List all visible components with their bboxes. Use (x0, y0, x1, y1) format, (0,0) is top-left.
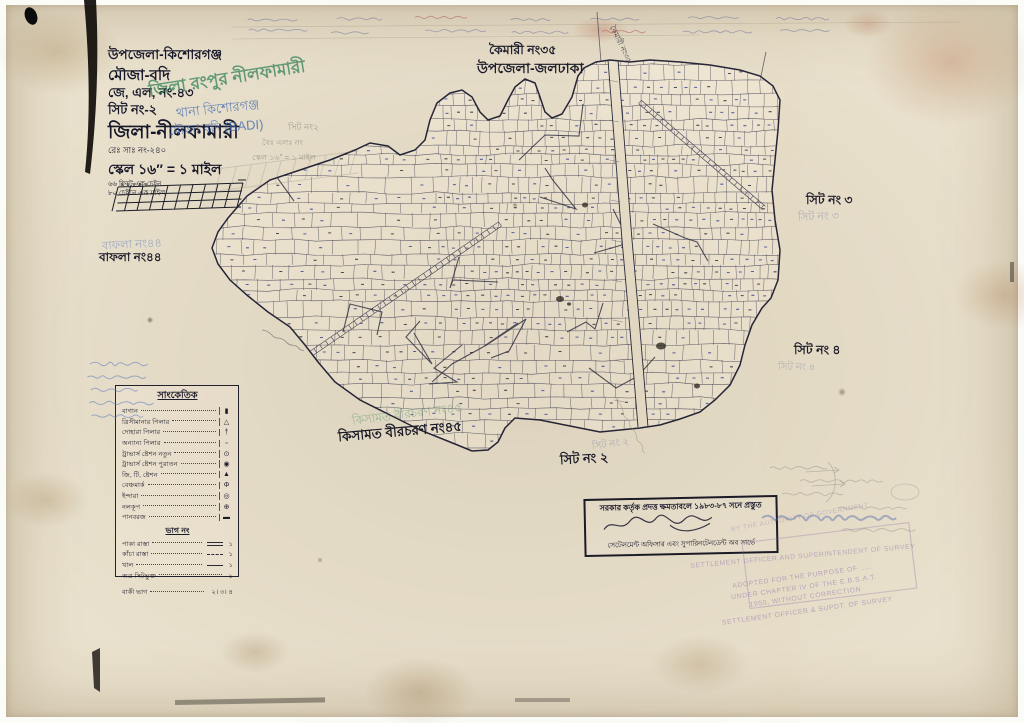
scanned-paper-background (6, 5, 1018, 717)
